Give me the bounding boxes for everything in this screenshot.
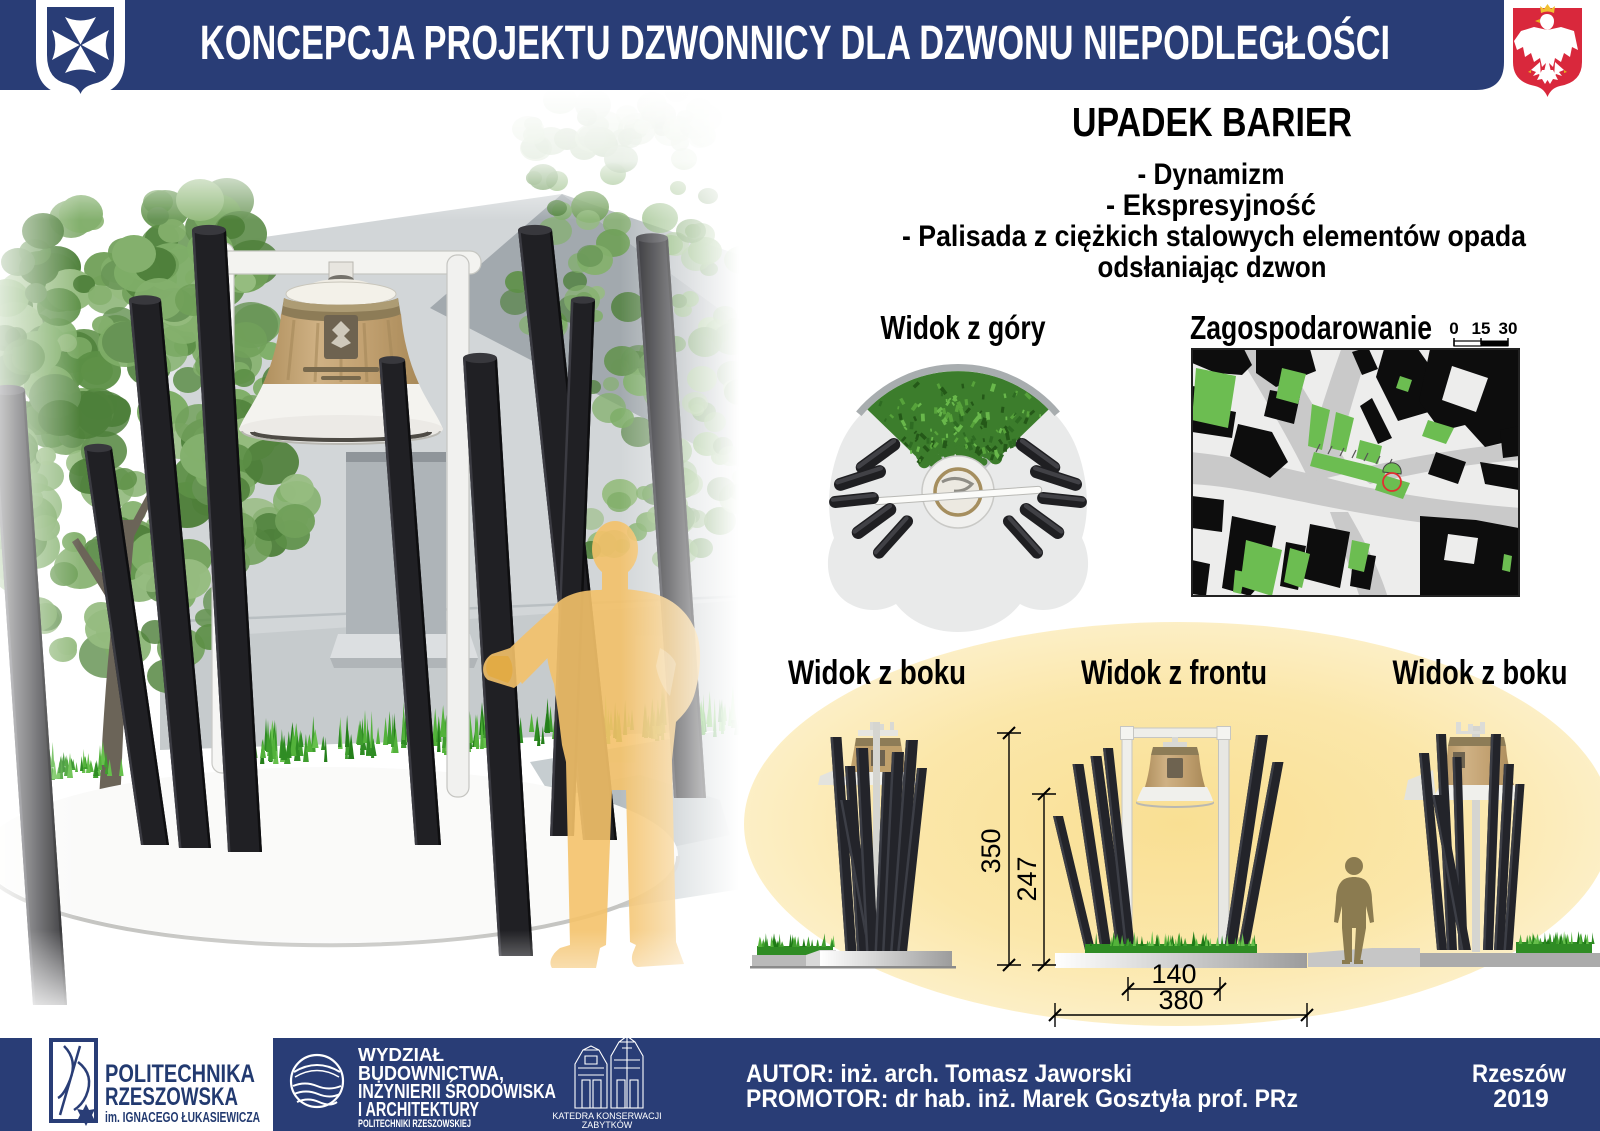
svg-text:Widok z góry: Widok z góry xyxy=(881,309,1047,346)
svg-text:AUTOR: inż. arch. Tomasz Jawor: AUTOR: inż. arch. Tomasz Jaworski xyxy=(746,1060,1132,1088)
svg-text:Rzeszów: Rzeszów xyxy=(1472,1060,1566,1088)
svg-text:- Ekspresyjność: - Ekspresyjność xyxy=(1106,189,1316,222)
svg-text:350: 350 xyxy=(976,828,1006,873)
svg-text:PROMOTOR: dr hab. inż. Marek: PROMOTOR: dr hab. inż. Marek Gosztyła pr… xyxy=(746,1085,1298,1113)
svg-text:odsłaniając dzwon: odsłaniając dzwon xyxy=(1098,251,1327,284)
svg-text:RZESZOWSKA: RZESZOWSKA xyxy=(105,1083,238,1111)
svg-text:2019: 2019 xyxy=(1493,1085,1549,1113)
svg-text:Widok z boku: Widok z boku xyxy=(788,654,966,692)
svg-text:- Dynamizm: - Dynamizm xyxy=(1138,158,1285,191)
svg-text:30: 30 xyxy=(1499,319,1518,338)
svg-text:KONCEPCJA PROJEKTU DZWONNICY D: KONCEPCJA PROJEKTU DZWONNICY DLA DZWONU … xyxy=(200,15,1390,70)
svg-text:Widok z boku: Widok z boku xyxy=(1393,654,1568,692)
svg-text:WYDZIAŁ: WYDZIAŁ xyxy=(358,1045,444,1065)
svg-text:Widok z frontu: Widok z frontu xyxy=(1081,654,1267,692)
svg-text:Zagospodarowanie: Zagospodarowanie xyxy=(1190,309,1432,346)
svg-text:ZABYTKÓW: ZABYTKÓW xyxy=(582,1120,633,1130)
svg-text:15: 15 xyxy=(1472,319,1491,338)
svg-text:UPADEK BARIER: UPADEK BARIER xyxy=(1072,99,1352,145)
svg-text:im. IGNACEGO ŁUKASIEWICZA: im. IGNACEGO ŁUKASIEWICZA xyxy=(105,1110,260,1126)
svg-text:0: 0 xyxy=(1449,319,1458,338)
svg-text:- Palisada z ciężkich stalowyc: - Palisada z ciężkich stalowych elementó… xyxy=(902,220,1526,253)
svg-text:380: 380 xyxy=(1158,985,1203,1015)
svg-text:POLITECHNIKI RZESZOWSKIEJ: POLITECHNIKI RZESZOWSKIEJ xyxy=(358,1118,471,1130)
svg-text:247: 247 xyxy=(1012,856,1042,901)
